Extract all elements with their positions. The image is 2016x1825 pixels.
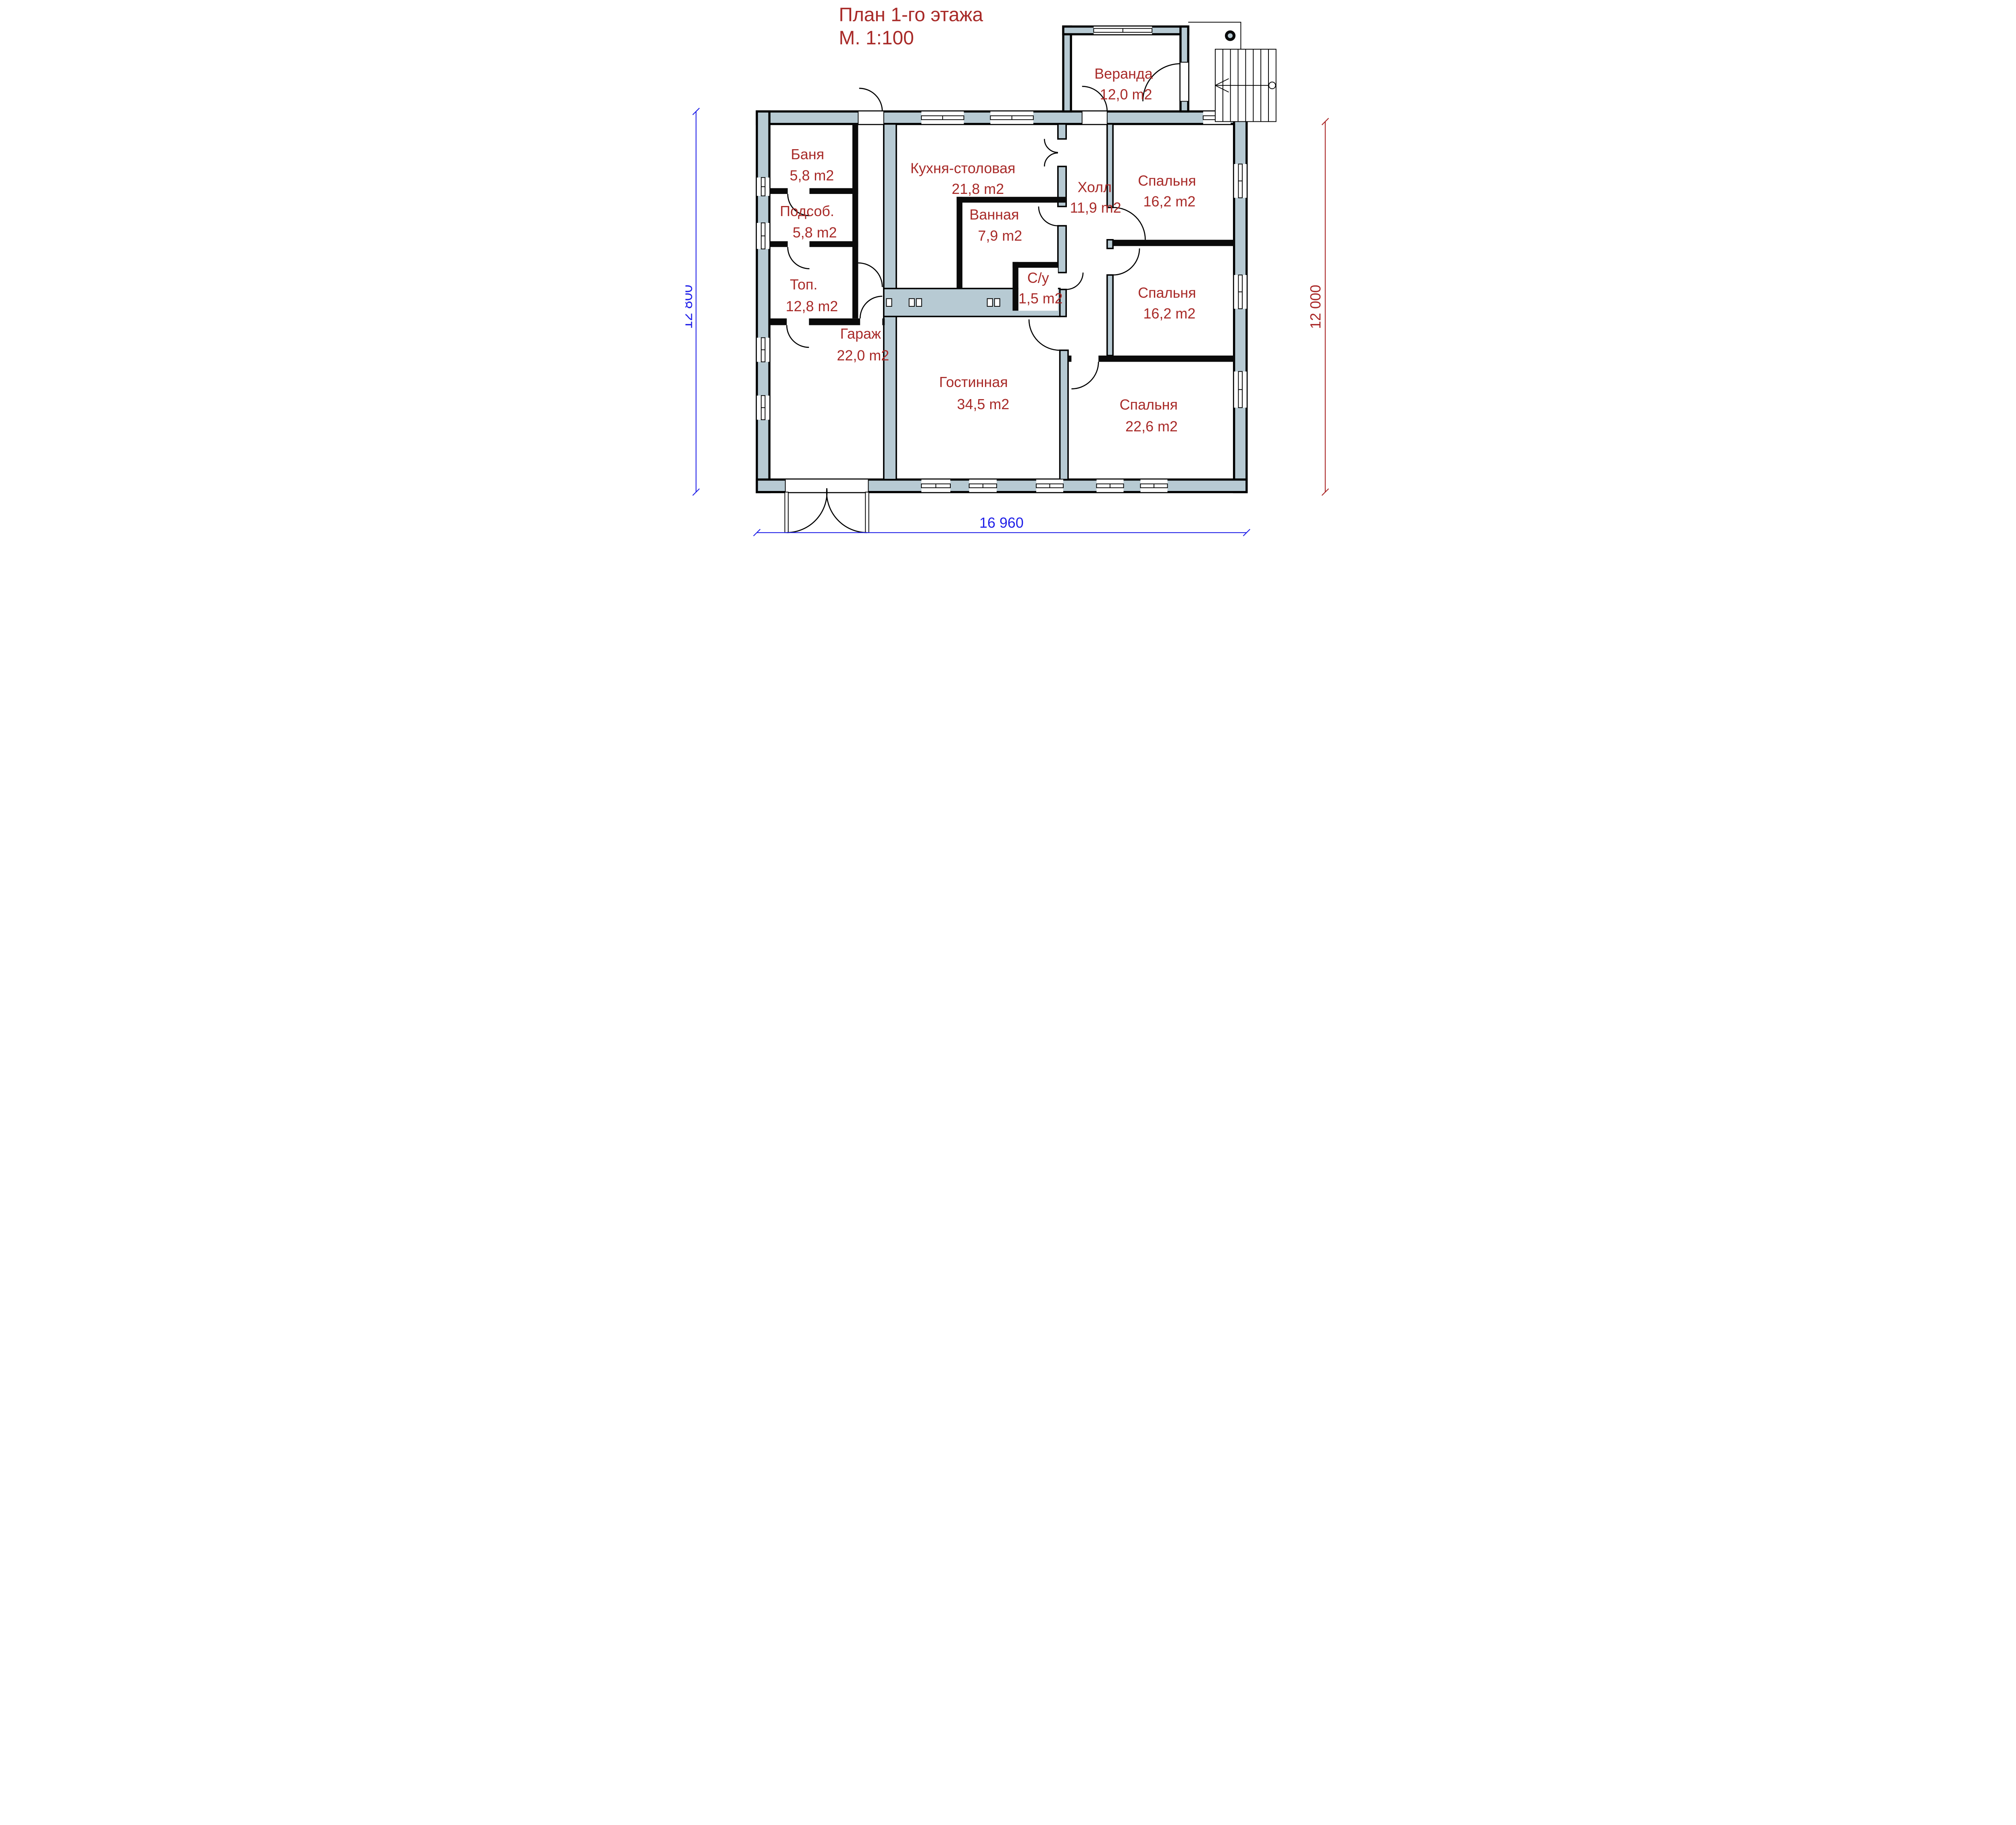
room-banya-name: Баня bbox=[791, 146, 824, 162]
room-veranda-name: Веранда bbox=[1094, 66, 1153, 82]
window-icon bbox=[1234, 371, 1247, 408]
room-wc-area: 1,5 m2 bbox=[1018, 291, 1063, 307]
room-bedroom2-area: 16,2 m2 bbox=[1143, 306, 1195, 322]
exterior-stairs bbox=[1188, 22, 1276, 122]
dimension-bottom-label: 16 960 bbox=[979, 515, 1024, 531]
room-top-name: Топ. bbox=[790, 277, 818, 293]
room-banya-area: 5,8 m2 bbox=[790, 168, 834, 184]
room-bedroom2-name: Спальня bbox=[1138, 285, 1196, 301]
window-icon bbox=[1093, 27, 1152, 34]
window-icon bbox=[757, 338, 769, 362]
room-veranda-area: 12,0 m2 bbox=[1100, 87, 1152, 103]
window-icon bbox=[757, 223, 769, 249]
room-garage-area: 22,0 m2 bbox=[837, 348, 889, 364]
floor-plan-canvas: 12 800 16 960 12 000 План 1-го этажа М. … bbox=[685, 0, 1331, 546]
window-icon bbox=[1234, 164, 1247, 198]
room-wc-name: С/у bbox=[1027, 270, 1049, 286]
room-podsob-name: Подсоб. bbox=[780, 203, 834, 219]
window-icon bbox=[1234, 275, 1247, 309]
room-top-area: 12,8 m2 bbox=[786, 298, 838, 314]
room-garage-name: Гараж bbox=[840, 326, 881, 342]
room-bedroom3-name: Спальня bbox=[1120, 397, 1178, 413]
floor-plan-page: 12 800 16 960 12 000 План 1-го этажа М. … bbox=[685, 0, 1331, 546]
dimension-right-label: 12 000 bbox=[1308, 285, 1324, 329]
room-kitchen-area: 21,8 m2 bbox=[952, 181, 1004, 197]
room-bath-name: Ванная bbox=[969, 207, 1019, 223]
plan-title-line1: План 1-го этажа bbox=[839, 4, 983, 26]
room-kitchen-name: Кухня-столовая bbox=[910, 160, 1016, 177]
dimension-left: 12 800 bbox=[685, 108, 700, 495]
dimension-bottom: 16 960 bbox=[754, 515, 1250, 536]
window-icon bbox=[1036, 480, 1063, 492]
porch-column-icon bbox=[1225, 30, 1235, 41]
window-icon bbox=[1097, 480, 1124, 492]
room-hall-area: 11,9 m2 bbox=[1070, 200, 1121, 216]
window-icon bbox=[757, 395, 769, 420]
window-icon bbox=[990, 111, 1033, 124]
window-icon bbox=[757, 177, 769, 196]
room-bedroom3-area: 22,6 m2 bbox=[1125, 418, 1178, 435]
dimension-right: 12 000 bbox=[1308, 118, 1329, 495]
room-living-area: 34,5 m2 bbox=[957, 396, 1010, 412]
room-bedroom1-area: 16,2 m2 bbox=[1143, 194, 1195, 210]
window-icon bbox=[921, 111, 964, 124]
room-hall-name: Холл bbox=[1078, 179, 1112, 195]
window-icon bbox=[969, 480, 997, 492]
dimension-left-label: 12 800 bbox=[685, 285, 696, 329]
room-bath-area: 7,9 m2 bbox=[978, 228, 1022, 244]
room-podsob-area: 5,8 m2 bbox=[793, 225, 837, 241]
window-icon bbox=[1140, 480, 1167, 492]
window-icon bbox=[921, 480, 950, 492]
room-bedroom1-name: Спальня bbox=[1138, 173, 1196, 189]
plan-title-line2: М. 1:100 bbox=[839, 27, 914, 49]
room-living-name: Гостинная bbox=[939, 374, 1008, 390]
